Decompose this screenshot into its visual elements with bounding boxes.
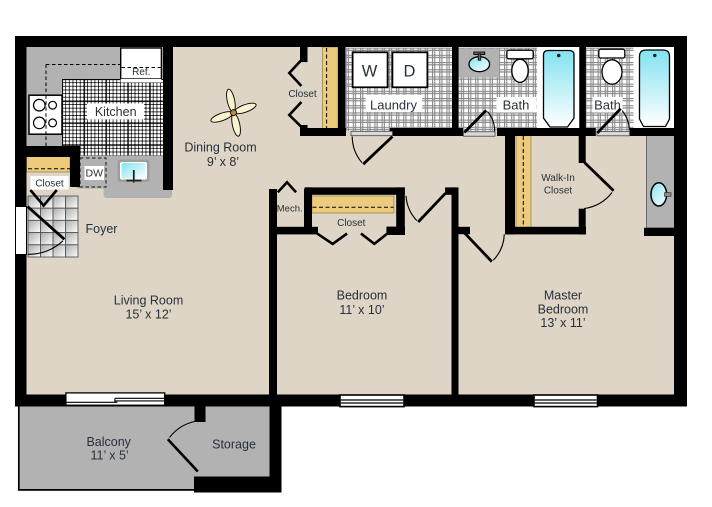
svg-text:Foyer: Foyer (86, 222, 118, 236)
svg-text:Laundry: Laundry (370, 98, 417, 113)
svg-text:Closet: Closet (35, 179, 64, 190)
svg-text:Dining Room: Dining Room (184, 141, 256, 155)
svg-text:Bath: Bath (503, 98, 530, 113)
svg-text:Bath: Bath (594, 98, 621, 113)
svg-text:D: D (404, 63, 416, 81)
svg-text:Closet: Closet (337, 218, 366, 229)
svg-text:Balcony: Balcony (86, 435, 131, 449)
svg-text:13’ x 11’: 13’ x 11’ (540, 316, 585, 330)
svg-text:Storage: Storage (212, 438, 256, 452)
svg-text:11’ x 10’: 11’ x 10’ (339, 303, 384, 317)
svg-text:Kitchen: Kitchen (95, 105, 137, 119)
svg-text:DW: DW (86, 168, 104, 180)
svg-text:Bedroom: Bedroom (337, 289, 388, 303)
svg-text:Mech.: Mech. (277, 203, 303, 214)
svg-text:W: W (362, 63, 378, 81)
svg-text:Closet: Closet (288, 89, 317, 100)
svg-text:Ref.: Ref. (132, 67, 150, 78)
svg-text:15’ x 12’: 15’ x 12’ (125, 308, 171, 322)
svg-text:Master: Master (544, 289, 582, 303)
svg-text:Walk-In: Walk-In (541, 173, 575, 184)
svg-text:9’ x 8’: 9’ x 8’ (207, 155, 239, 169)
svg-text:Bedroom: Bedroom (538, 303, 589, 317)
svg-text:Closet: Closet (544, 186, 573, 197)
svg-text:Living Room: Living Room (114, 294, 183, 308)
svg-text:11’ x 5’: 11’ x 5’ (90, 449, 128, 463)
